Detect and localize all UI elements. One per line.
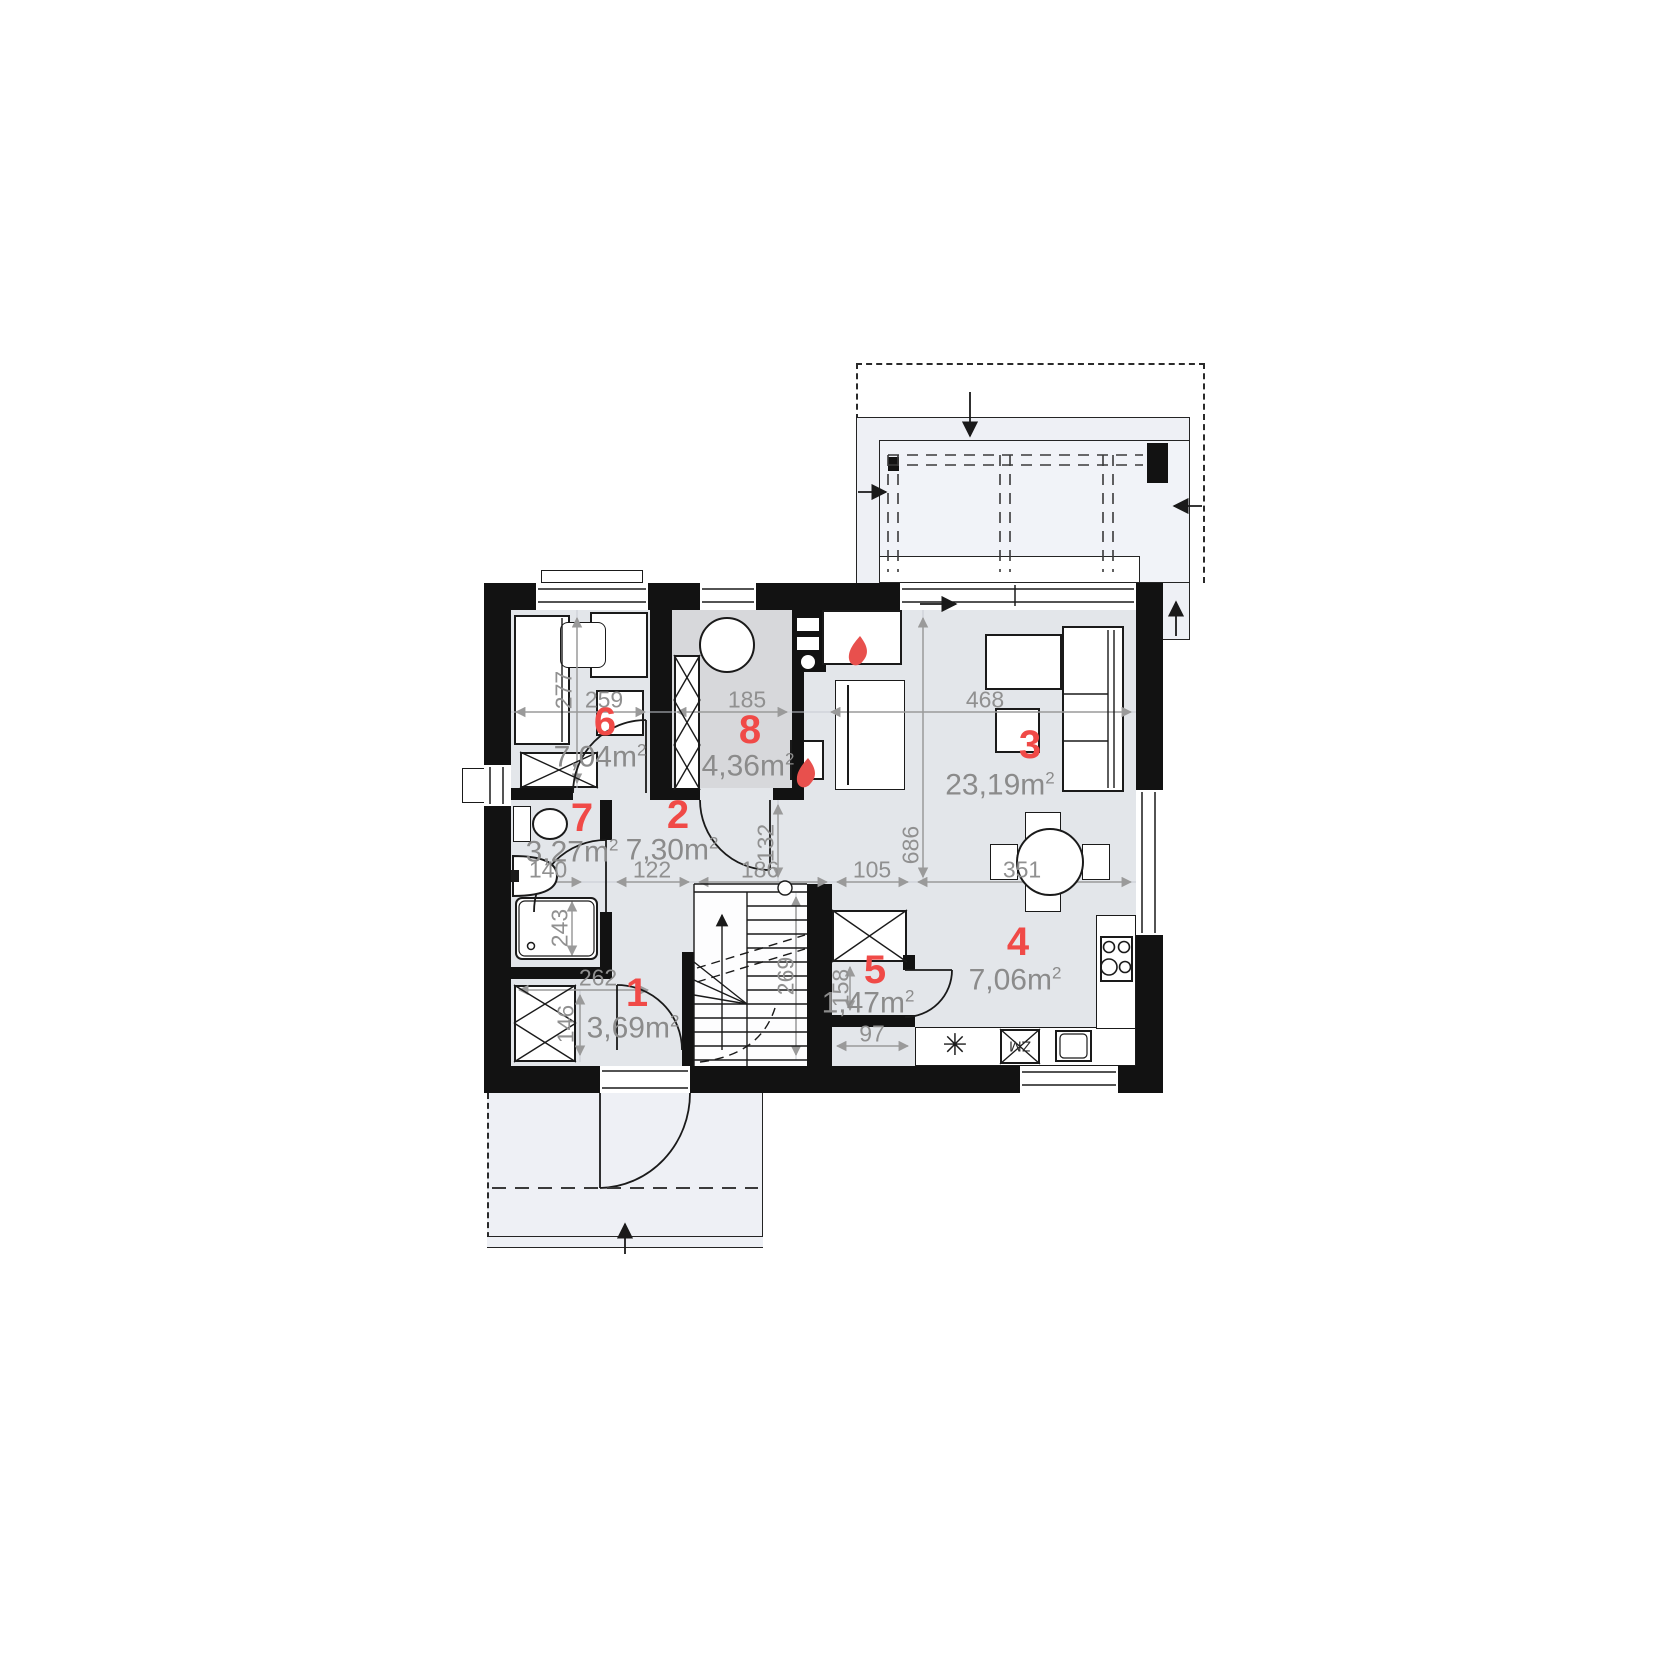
wall-bath-right-a: [600, 800, 612, 840]
dim-146: 146: [555, 1005, 578, 1043]
window-bathroom: [484, 765, 511, 806]
room8-area: 4,36m2: [702, 751, 795, 782]
sofa-chaise: [985, 634, 1062, 690]
kitchen-sink: [1055, 1030, 1092, 1062]
room1-number: 1: [626, 973, 648, 1013]
dim-97: 97: [859, 1023, 885, 1046]
fireplace-unit: [822, 610, 902, 665]
room3-number: 3: [1019, 725, 1041, 765]
tv-bench: [835, 680, 905, 790]
dining-chair-east: [1082, 844, 1110, 880]
room4-area: 7,06m2: [969, 965, 1062, 996]
dim-243: 243: [549, 909, 572, 947]
dim-269: 269: [775, 957, 798, 995]
porch-step: [487, 1236, 763, 1248]
floor-plan: 1 3,69m2 2 7,30m2 3 23,19m2 4 7,06m2 5 1…: [0, 0, 1680, 1680]
window-room6-sill: [541, 570, 643, 583]
dim-185: 185: [728, 689, 766, 712]
terrace-post-large: [1147, 443, 1168, 483]
dim-468: 468: [966, 689, 1004, 712]
room5-number: 5: [864, 950, 886, 990]
room6-area: 7,04m2: [554, 742, 647, 773]
wall-room5-right-stub: [903, 955, 915, 970]
sink-symbol-icon: ✳: [942, 1031, 967, 1061]
room4-number: 4: [1007, 922, 1029, 962]
dim-140: 140: [529, 859, 567, 882]
dim-351: 351: [1003, 859, 1041, 882]
entrance-door-opening: [600, 1066, 690, 1093]
dim-262: 262: [579, 967, 617, 990]
hob: [1100, 936, 1133, 982]
window-room6: [536, 583, 648, 610]
dim-186: 186: [741, 859, 779, 882]
dim-259: 259: [585, 689, 623, 712]
dim-277: 277: [553, 671, 576, 709]
window-kitchen-bottom: [1020, 1066, 1118, 1093]
desk-chair: [560, 622, 606, 668]
wall-room6-bottom: [505, 788, 573, 800]
room7-number: 7: [571, 798, 593, 838]
wall-room6-room8: [650, 583, 672, 800]
wall-room8-bottom-b: [773, 788, 792, 800]
chimney-vent-1: [797, 618, 819, 631]
room2-number: 2: [667, 795, 689, 835]
dining-chair-south: [1025, 884, 1061, 912]
room8-number: 8: [739, 710, 761, 750]
dining-chair-north: [1025, 812, 1061, 840]
window-room8: [700, 583, 756, 610]
dim-158: 158: [830, 969, 853, 1007]
bath-window-sill: [462, 768, 486, 803]
terrace-step: [879, 556, 1140, 583]
sofa-body: [1062, 626, 1124, 792]
tall-cabinet-room8: [674, 655, 700, 790]
dim-105: 105: [853, 859, 891, 882]
room3-area: 23,19m2: [945, 770, 1055, 801]
window-living-right: [1136, 790, 1163, 935]
room1-area: 3,69m2: [587, 1013, 680, 1044]
terrace-post-small: [888, 457, 899, 471]
wall-stairs-left: [682, 952, 694, 1066]
wall-left: [484, 583, 511, 1093]
porch-slab: [487, 1093, 763, 1248]
dim-122: 122: [633, 859, 671, 882]
terrace-door: [900, 583, 1136, 610]
dim-686: 686: [900, 826, 923, 864]
chimney-vent-2: [797, 637, 819, 650]
dishwasher-label: ZM: [1009, 1039, 1031, 1054]
